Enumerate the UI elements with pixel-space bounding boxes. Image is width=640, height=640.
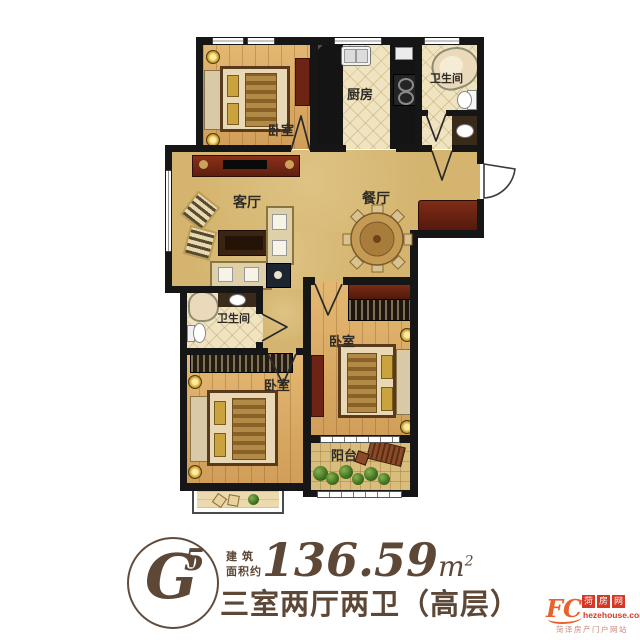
room-label-bedroom-right: 卧室 [329,331,355,350]
watermark-site-name: 菏 房 网 [582,595,625,608]
dining-table [343,205,412,272]
door-bathroom-top [426,114,446,141]
door-bedroom-right [315,284,342,315]
entry-door [484,164,515,198]
room-label-dining-room: 餐厅 [362,188,390,208]
room-label-bathroom-middle: 卫生间 [217,310,250,326]
door-bathroom-lower [432,151,452,180]
site-watermark: FC 菏 房 网 hezehouse.com 菏泽房产门户网站 [546,592,640,638]
room-label-living-room: 客厅 [233,192,261,212]
room-label-kitchen: 厨房 [347,84,373,103]
room-label-bedroom-top-left: 卧室 [268,120,294,139]
watermark-tagline: 菏泽房产门户网站 [556,624,628,635]
door-bathroom-middle [262,314,287,341]
room-label-bedroom-bottom-left: 卧室 [264,375,290,394]
doors-and-dining-overlay [0,0,640,640]
watermark-url: hezehouse.com [583,610,640,620]
room-label-bathroom-top: 卫生间 [430,70,463,86]
floor-plan-page: 卧室 厨房 卫生间 客厅 餐厅 卫生间 卧室 卧室 阳台 G 5 建 筑 面积约… [0,0,640,640]
room-label-balcony: 阳台 [331,445,357,464]
